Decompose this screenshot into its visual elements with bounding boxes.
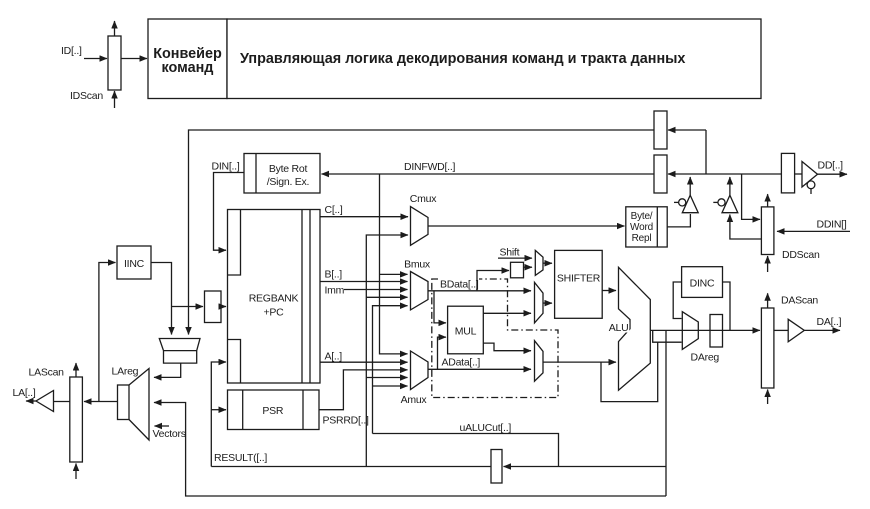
svg-text:DAreg: DAreg (691, 352, 720, 364)
svg-text:DA[..]: DA[..] (817, 316, 842, 328)
svg-text:Byte/: Byte/ (631, 211, 653, 222)
svg-text:/Sign. Ex.: /Sign. Ex. (267, 176, 309, 188)
svg-text:+PC: +PC (264, 307, 285, 319)
svg-text:BData[..]: BData[..] (440, 279, 479, 291)
svg-text:SHIFTER: SHIFTER (557, 273, 601, 285)
svg-text:RESULT([..]: RESULT([..] (214, 452, 267, 464)
svg-text:C[..]: C[..] (325, 204, 343, 216)
svg-text:DIN[..]: DIN[..] (212, 161, 240, 173)
svg-text:B[..]: B[..] (325, 269, 343, 281)
svg-text:A[..]: A[..] (325, 351, 343, 363)
svg-text:LA[..]: LA[..] (13, 387, 36, 399)
svg-text:Byte Rot: Byte Rot (269, 163, 308, 175)
svg-text:команд: команд (162, 60, 214, 76)
svg-text:uALUCut[..]: uALUCut[..] (460, 422, 512, 434)
svg-text:Imm: Imm (325, 285, 345, 297)
svg-text:Управляющая логика декодирован: Управляющая логика декодирования команд … (240, 51, 685, 67)
svg-text:Repl: Repl (632, 233, 652, 244)
svg-text:MUL: MUL (455, 326, 477, 338)
svg-text:Vectors: Vectors (153, 428, 186, 440)
svg-text:IINC: IINC (124, 258, 145, 270)
svg-text:LAreg: LAreg (112, 366, 139, 378)
svg-text:DDIN[]: DDIN[] (817, 219, 847, 231)
svg-text:DD[..]: DD[..] (818, 160, 844, 172)
svg-text:REGBANK: REGBANK (249, 293, 299, 305)
svg-text:ID[..]: ID[..] (61, 45, 82, 57)
svg-text:LAScan: LAScan (29, 367, 65, 379)
svg-text:PSRRD[..]: PSRRD[..] (323, 415, 370, 427)
svg-text:Amux: Amux (401, 394, 428, 406)
svg-text:Shift: Shift (500, 247, 520, 259)
svg-text:PSR: PSR (262, 405, 284, 417)
svg-text:DDScan: DDScan (782, 249, 820, 261)
svg-text:IDScan: IDScan (70, 90, 103, 102)
svg-text:DAScan: DAScan (781, 295, 818, 307)
svg-text:DINC: DINC (690, 278, 715, 290)
svg-text:Bmux: Bmux (404, 259, 431, 271)
svg-text:ALU: ALU (609, 322, 629, 334)
svg-text:DINFWD[..]: DINFWD[..] (404, 161, 455, 173)
svg-text:Word: Word (630, 222, 653, 233)
svg-text:AData[..]: AData[..] (442, 357, 481, 369)
svg-text:Cmux: Cmux (410, 193, 437, 205)
